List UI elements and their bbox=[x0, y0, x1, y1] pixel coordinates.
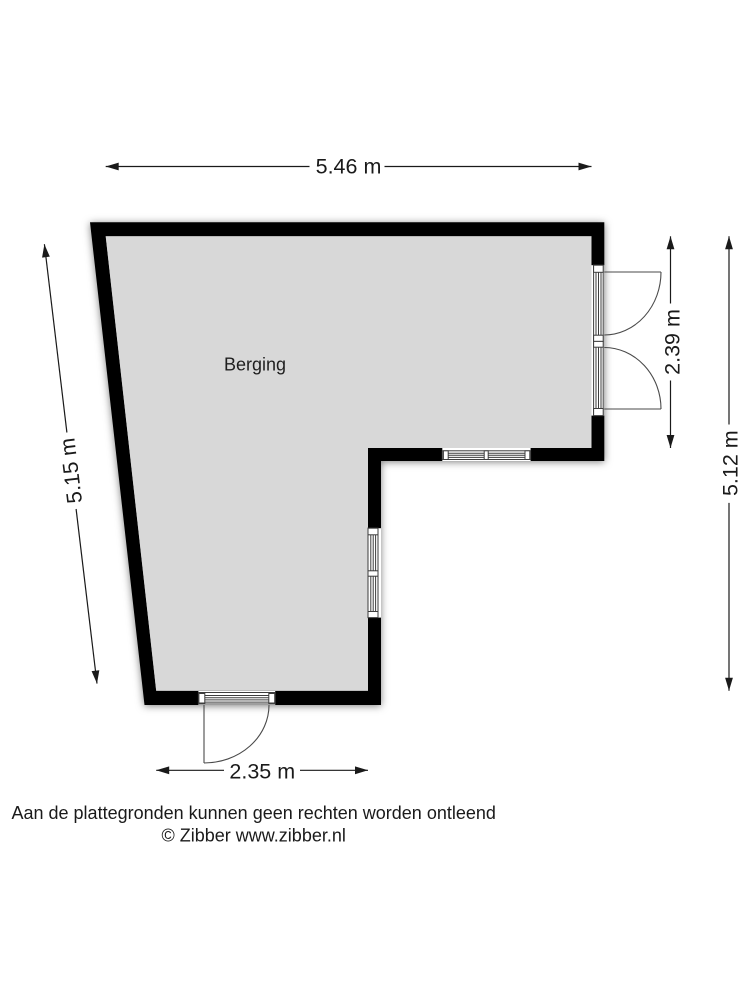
svg-text:© Zibber www.zibber.nl: © Zibber www.zibber.nl bbox=[162, 825, 346, 845]
svg-text:5.12 m: 5.12 m bbox=[718, 430, 742, 496]
svg-text:2.39 m: 2.39 m bbox=[661, 309, 685, 375]
svg-text:5.46 m: 5.46 m bbox=[316, 154, 382, 178]
svg-text:5.15 m: 5.15 m bbox=[55, 437, 87, 505]
svg-text:Berging: Berging bbox=[224, 355, 286, 375]
svg-text:2.35 m: 2.35 m bbox=[229, 760, 295, 784]
svg-text:Aan de plattegronden kunnen ge: Aan de plattegronden kunnen geen rechten… bbox=[12, 803, 496, 823]
